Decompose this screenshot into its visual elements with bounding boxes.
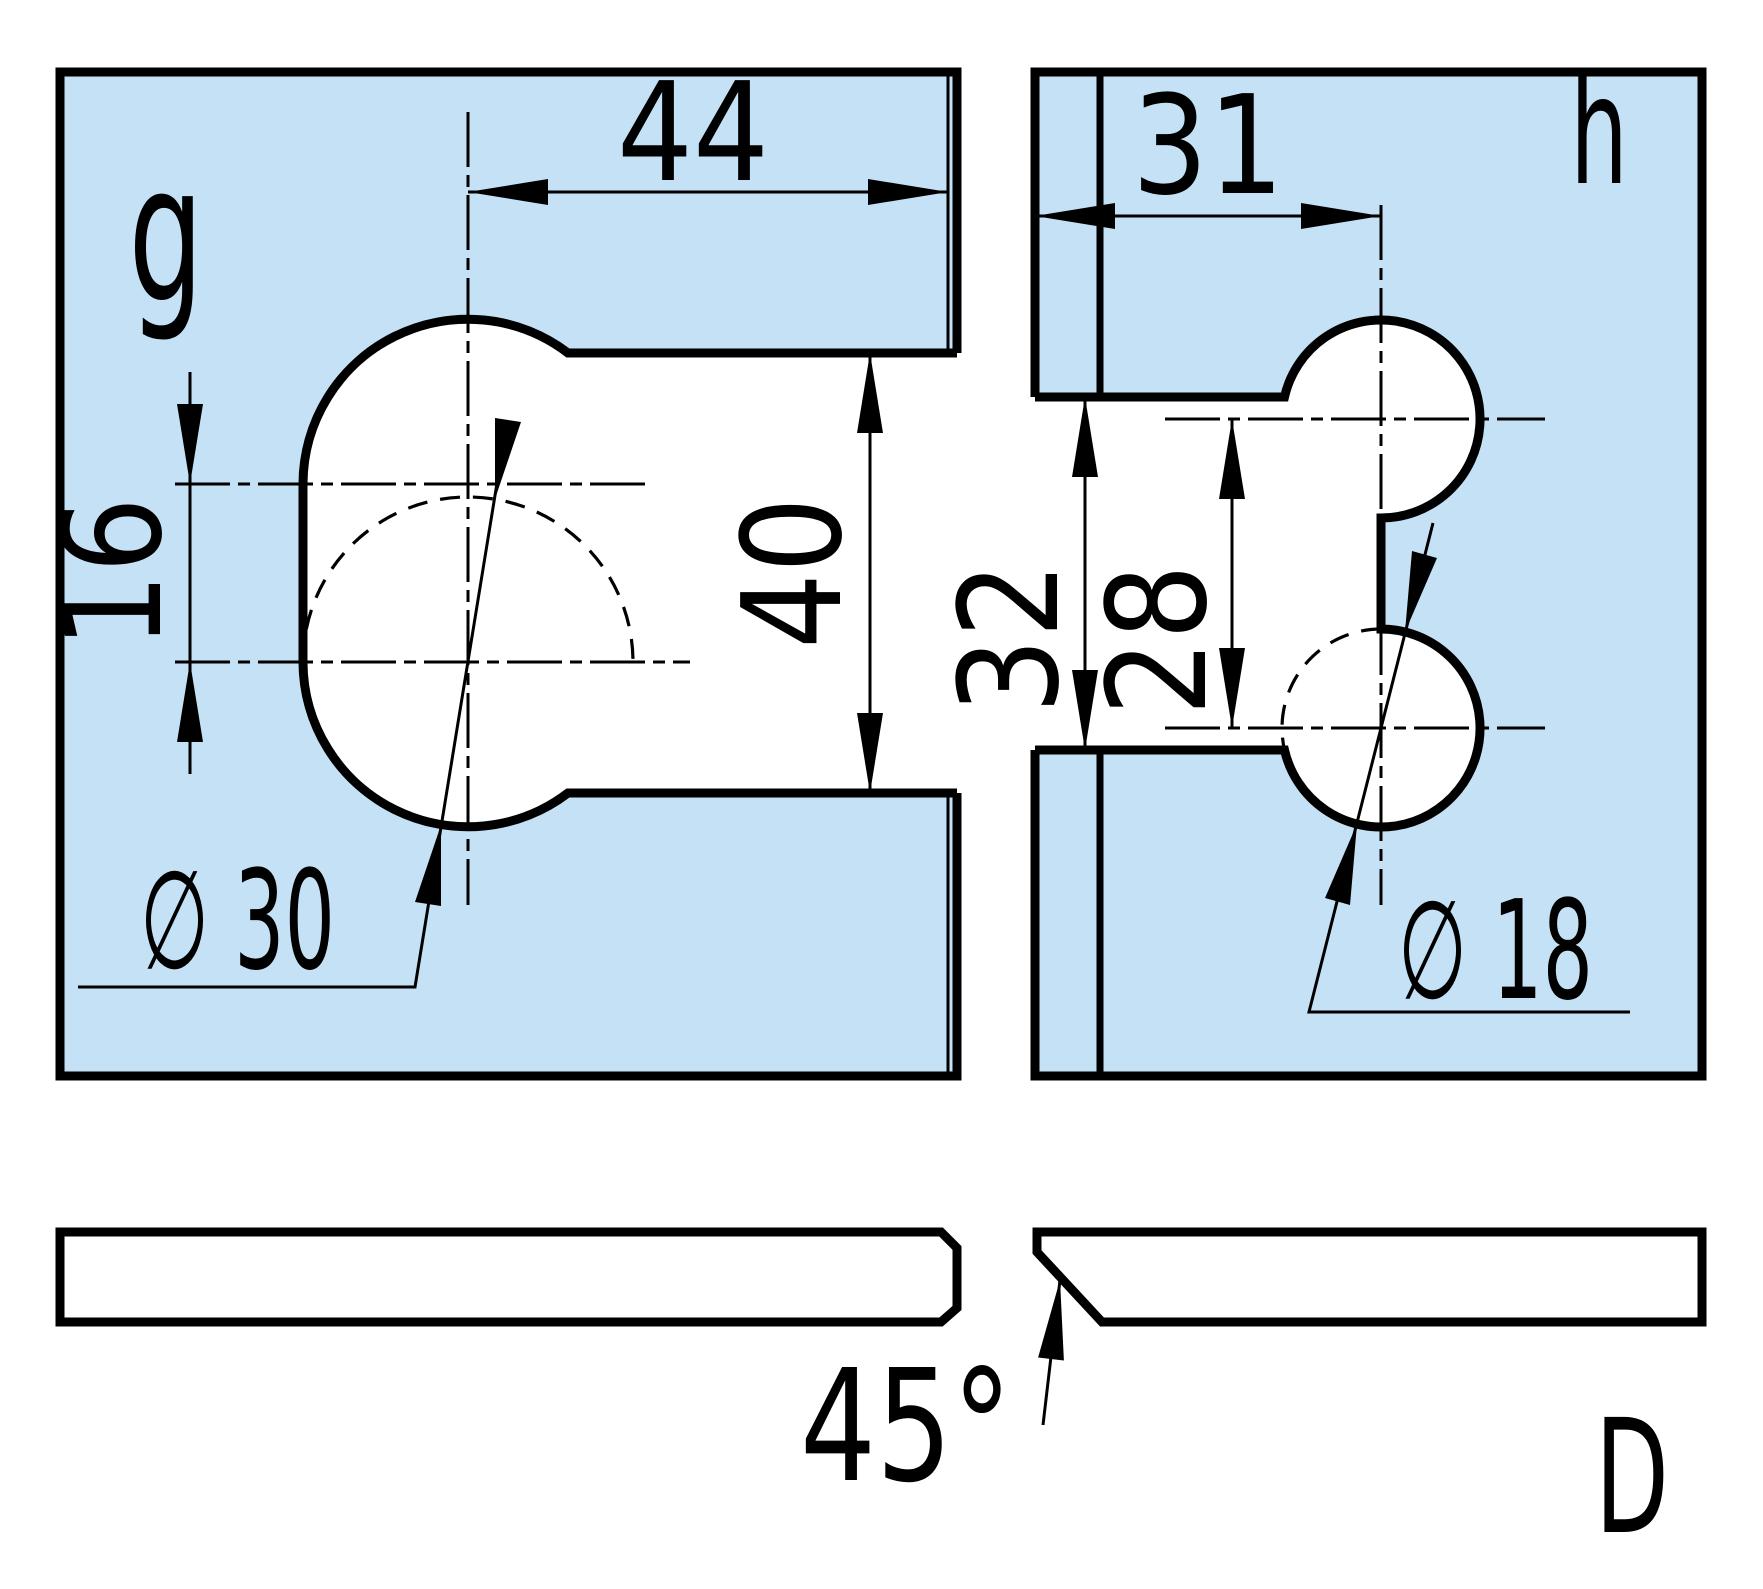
dim-32-label: 32 xyxy=(931,562,1090,714)
view-label-h: h xyxy=(1570,45,1628,219)
sheet-label-D: D xyxy=(1595,1386,1669,1570)
chamfer-leader-arrow xyxy=(1038,1280,1064,1361)
side-view-bar-h xyxy=(1037,1232,1702,1322)
dim-44-label: 44 xyxy=(617,54,769,213)
dim-45deg-label: 45° xyxy=(800,1336,1012,1517)
dim-31-label: 31 xyxy=(1132,67,1284,226)
side-view-bar-g xyxy=(60,1232,957,1322)
dim-dia18-label: ∅ 18 xyxy=(1398,872,1593,1031)
technical-drawing: g h 45° D 44 16 xyxy=(0,0,1763,1585)
side-view: 45° D xyxy=(60,1232,1702,1570)
dim-28-label: 28 xyxy=(1079,564,1238,716)
view-label-g: g xyxy=(129,124,204,345)
dim-dia30-label: ∅ 30 xyxy=(140,842,335,1001)
drawing-canvas: g h 45° D 44 16 xyxy=(0,0,1763,1585)
dim-16-label: 16 xyxy=(34,497,193,649)
dim-40-label: 40 xyxy=(714,497,873,649)
